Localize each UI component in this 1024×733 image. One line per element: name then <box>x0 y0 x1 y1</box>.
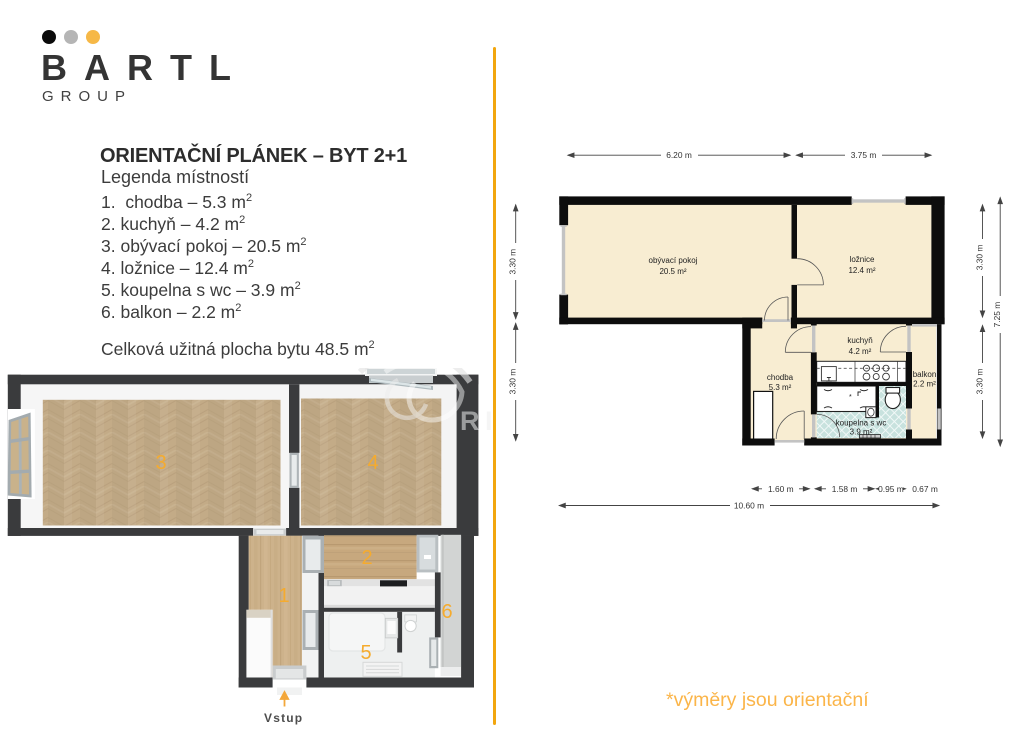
svg-text:4.2 m²: 4.2 m² <box>849 347 872 356</box>
svg-text:12.4 m²: 12.4 m² <box>848 266 875 275</box>
svg-text:ložnice: ložnice <box>850 255 875 264</box>
svg-text:3.30 m: 3.30 m <box>975 245 985 271</box>
svg-text:7.25 m: 7.25 m <box>992 302 1002 328</box>
svg-text:koupelna s wc: koupelna s wc <box>836 419 887 428</box>
svg-text:R: R <box>460 406 480 436</box>
svg-text:5.3 m²: 5.3 m² <box>769 383 792 392</box>
svg-text:5: 5 <box>360 642 371 664</box>
svg-text:6: 6 <box>441 601 452 623</box>
svg-text:*: * <box>849 394 852 401</box>
svg-text:1.60 m: 1.60 m <box>768 484 794 494</box>
svg-text:2.2 m²: 2.2 m² <box>913 380 936 389</box>
svg-text:3.75 m: 3.75 m <box>851 150 877 160</box>
svg-text:20.5 m²: 20.5 m² <box>659 267 686 276</box>
svg-text:3: 3 <box>155 452 166 474</box>
svg-text:I: I <box>485 406 493 436</box>
svg-text:3.30 m: 3.30 m <box>508 249 518 275</box>
svg-text:obývací pokoj: obývací pokoj <box>649 256 698 265</box>
svg-text:2: 2 <box>361 547 372 569</box>
svg-text:10.60 m: 10.60 m <box>734 501 764 511</box>
svg-text:kuchyň: kuchyň <box>847 336 872 345</box>
svg-text:1.58 m: 1.58 m <box>832 484 858 494</box>
svg-text:3.30 m: 3.30 m <box>508 369 518 395</box>
svg-text:chodba: chodba <box>767 373 794 382</box>
svg-text:3.30 m: 3.30 m <box>975 369 985 395</box>
svg-text:0.67 m: 0.67 m <box>912 484 938 494</box>
svg-text:6.20 m: 6.20 m <box>666 150 692 160</box>
svg-text:1: 1 <box>278 585 289 607</box>
svg-text:0.95 m: 0.95 m <box>878 484 904 494</box>
svg-text:3.9 m²: 3.9 m² <box>850 428 873 437</box>
svg-text:4: 4 <box>367 452 378 474</box>
svg-text:balkon: balkon <box>913 370 937 379</box>
